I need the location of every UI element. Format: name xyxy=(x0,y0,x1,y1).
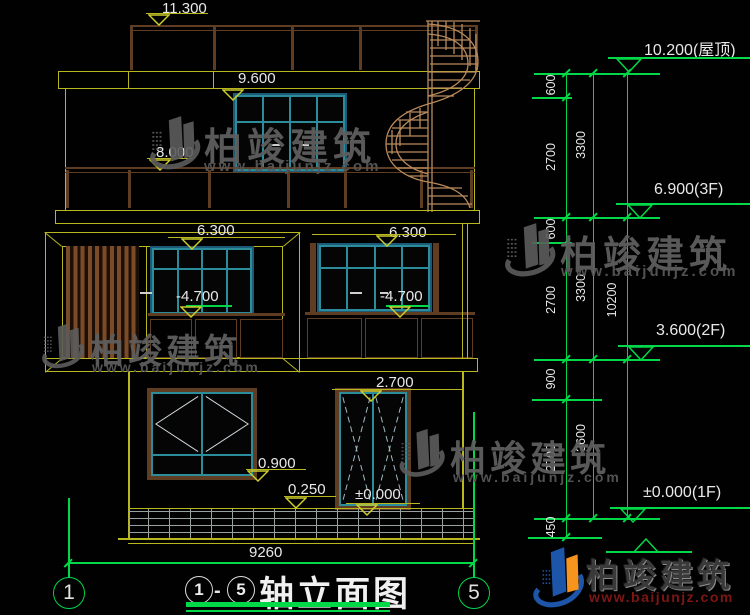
chain-dim-label: 900 xyxy=(544,369,558,390)
roof-rail-post xyxy=(213,25,216,70)
elevation-mark-4700-right: -4.700 xyxy=(380,288,423,305)
balcony-rail-post xyxy=(344,170,347,208)
title-axis-circle-start: 1 xyxy=(185,576,213,604)
ground-line xyxy=(128,543,474,544)
window-jamb xyxy=(310,243,316,313)
watermark-site: www.baijunjz.com xyxy=(453,469,622,485)
roof-slab-joint xyxy=(128,72,129,88)
wall-line xyxy=(467,224,468,358)
roof-slab-joint xyxy=(213,72,214,88)
window-1f xyxy=(147,388,257,480)
chain-dim-label: 3300 xyxy=(574,131,588,159)
dim-arrow xyxy=(356,504,378,516)
railing-panel xyxy=(365,318,418,358)
casement-symbol xyxy=(203,394,251,454)
dim-arrow xyxy=(285,497,307,509)
floor-slab-3f xyxy=(55,210,480,224)
company-logo-site: www.baijunjz.com xyxy=(589,589,734,605)
dim-arrow xyxy=(148,14,170,26)
watermark-logo-icon xyxy=(501,218,559,282)
watermark-site: www.baijunjz.com xyxy=(204,158,381,175)
window-handle-mark xyxy=(140,292,152,294)
railing-top-rail xyxy=(148,313,285,316)
roof-rail-post xyxy=(359,25,362,70)
chain-dim-label: 2700 xyxy=(544,143,558,171)
balcony-rail-post xyxy=(208,170,211,208)
casement-symbol xyxy=(153,394,201,454)
railing-panel xyxy=(307,318,362,358)
watermark-logo-icon xyxy=(146,112,204,174)
watermark-logo-icon xyxy=(36,320,90,372)
ground-line xyxy=(118,538,480,540)
chain-dim-label: 2700 xyxy=(544,286,558,314)
elevation-drawing-canvas: 11.300 9.600 8.000 6.300 6.300 -4.700 -4… xyxy=(0,0,750,615)
overall-width-dim: 9260 xyxy=(249,544,282,561)
elevation-mark-4700-left: -4.700 xyxy=(176,288,219,305)
dim-arrow xyxy=(181,238,203,250)
balcony-rail-post xyxy=(128,170,131,208)
watermark-site: www.baijunjz.com xyxy=(561,263,738,280)
company-logo-icon xyxy=(530,544,586,608)
dim-arrow xyxy=(360,390,382,402)
dim-line xyxy=(332,389,462,390)
roof-rail-post xyxy=(130,25,133,70)
wall-line xyxy=(462,224,463,358)
balcony-rail-post xyxy=(287,170,290,208)
dim-arrow xyxy=(247,470,269,482)
chain-dim-label: 600 xyxy=(544,75,558,96)
dim-chain-line xyxy=(627,73,628,518)
chain-dim-label: 10200 xyxy=(605,283,619,318)
brick-base xyxy=(128,508,475,539)
dim-chain-tick-line xyxy=(532,399,602,401)
window-jamb xyxy=(433,243,439,313)
axis-bubble-5: 5 xyxy=(458,577,490,609)
railing-panel xyxy=(240,319,283,358)
level-mark-2f: 3.600(2F) xyxy=(656,322,725,340)
overall-dim-line xyxy=(68,562,473,564)
dim-arrow xyxy=(376,235,398,247)
title-underline xyxy=(186,602,390,607)
axis-line xyxy=(68,498,70,578)
railing-panel xyxy=(421,318,473,358)
dim-arrow xyxy=(222,89,244,101)
drawing-title: 轴立面图 xyxy=(259,566,411,615)
title-separator: - xyxy=(214,580,221,603)
watermark-logo-icon xyxy=(396,424,448,482)
title-underline xyxy=(186,610,390,612)
roof-rail-post xyxy=(291,25,294,70)
elevation-mark-9600: 9.600 xyxy=(238,70,276,87)
title-axis-circle-end: 5 xyxy=(227,576,255,604)
chain-dim-label: 450 xyxy=(544,517,558,538)
level-mark-1f: ±0.000(1F) xyxy=(643,484,721,502)
level-line xyxy=(534,359,660,361)
axis-bubble-1: 1 xyxy=(53,577,85,609)
spiral-staircase xyxy=(366,16,494,216)
window-handle-mark xyxy=(350,292,362,294)
dim-arrow xyxy=(389,306,411,318)
balcony-rail-post xyxy=(66,170,69,208)
level-mark-3f: 6.900(3F) xyxy=(654,181,723,199)
dim-arrow xyxy=(180,306,202,318)
watermark-site: www.baijunjz.com xyxy=(92,359,261,375)
elevation-mark-0000-door: ±0.000 xyxy=(355,486,401,503)
